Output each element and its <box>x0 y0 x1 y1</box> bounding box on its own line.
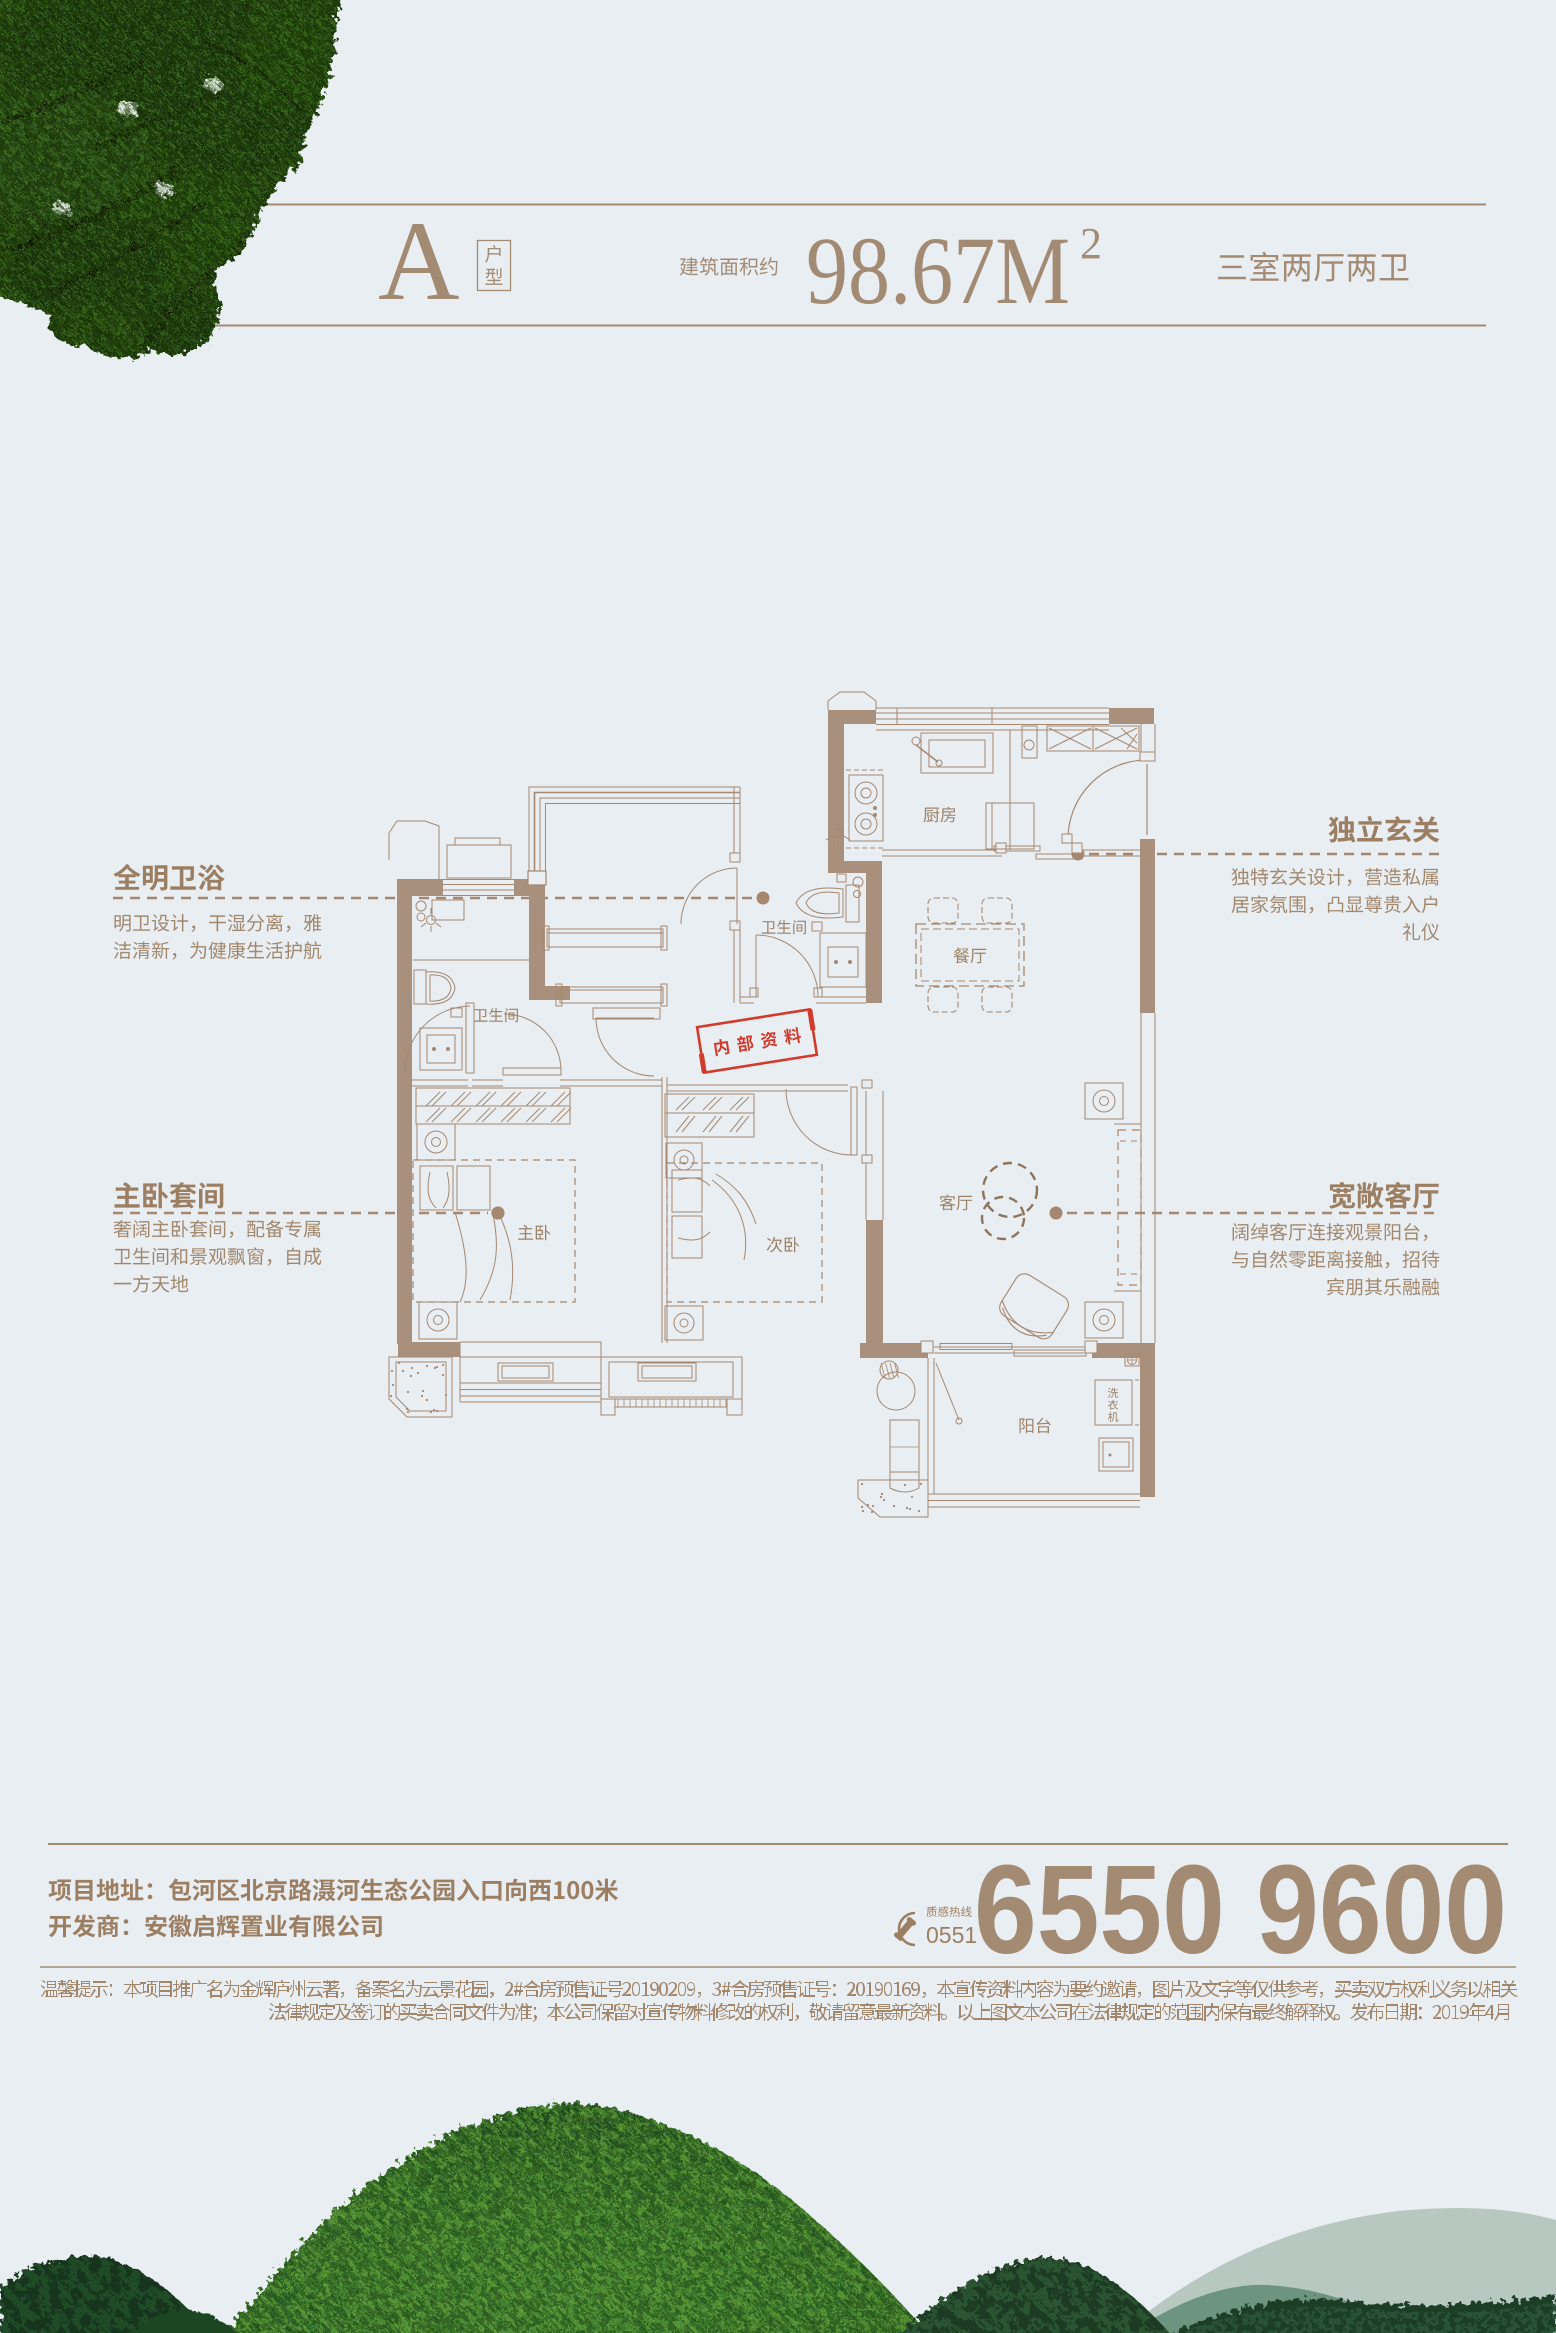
svg-text:0551: 0551 <box>926 1922 977 1948</box>
svg-text:2: 2 <box>1080 219 1102 268</box>
svg-text:A: A <box>378 199 460 324</box>
svg-text:6550 9600: 6550 9600 <box>974 1839 1507 1980</box>
svg-text:98.67M: 98.67M <box>806 217 1070 324</box>
